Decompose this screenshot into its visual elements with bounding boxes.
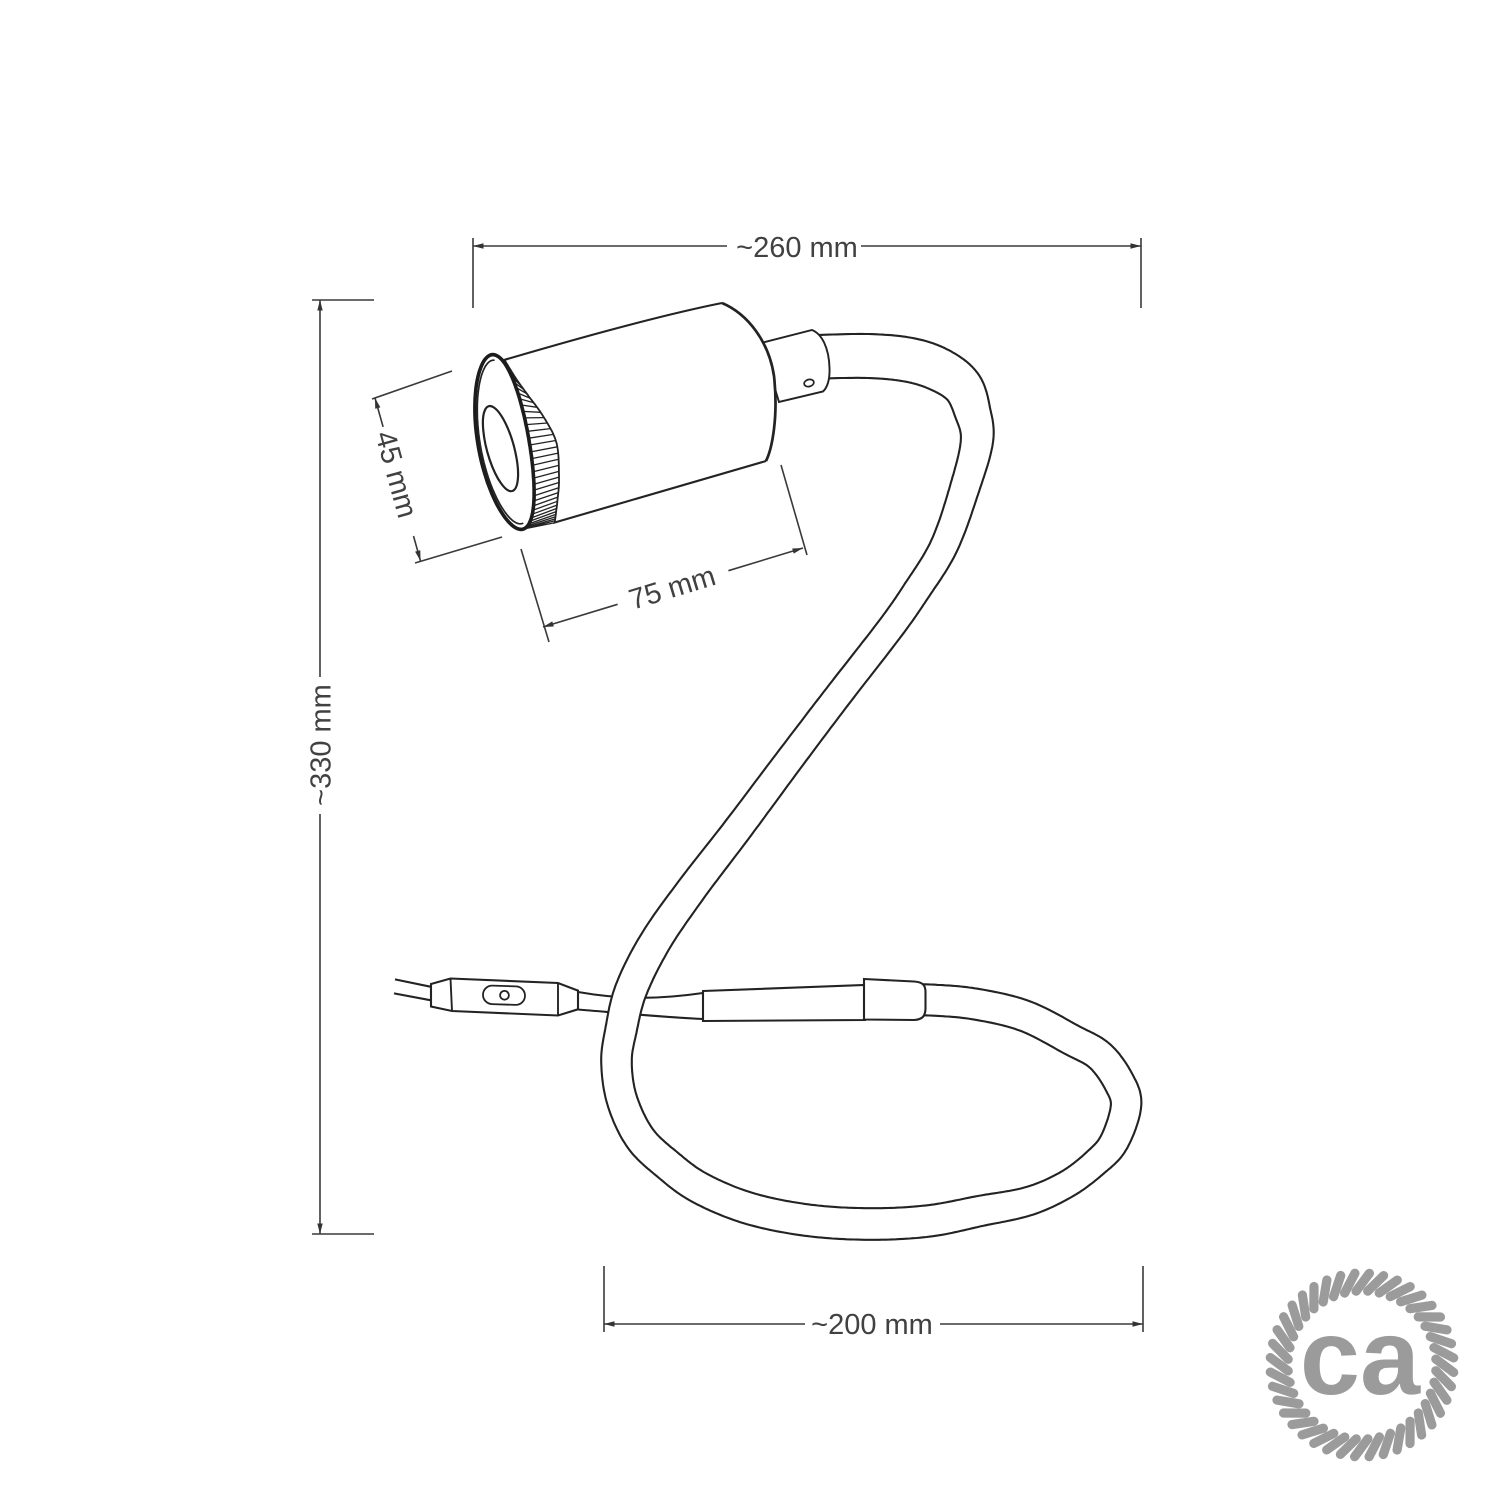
svg-text:~260 mm: ~260 mm (736, 232, 858, 264)
svg-text:~330 mm: ~330 mm (306, 684, 338, 806)
svg-text:~200 mm: ~200 mm (811, 1309, 933, 1341)
svg-text:ca: ca (1300, 1296, 1421, 1417)
